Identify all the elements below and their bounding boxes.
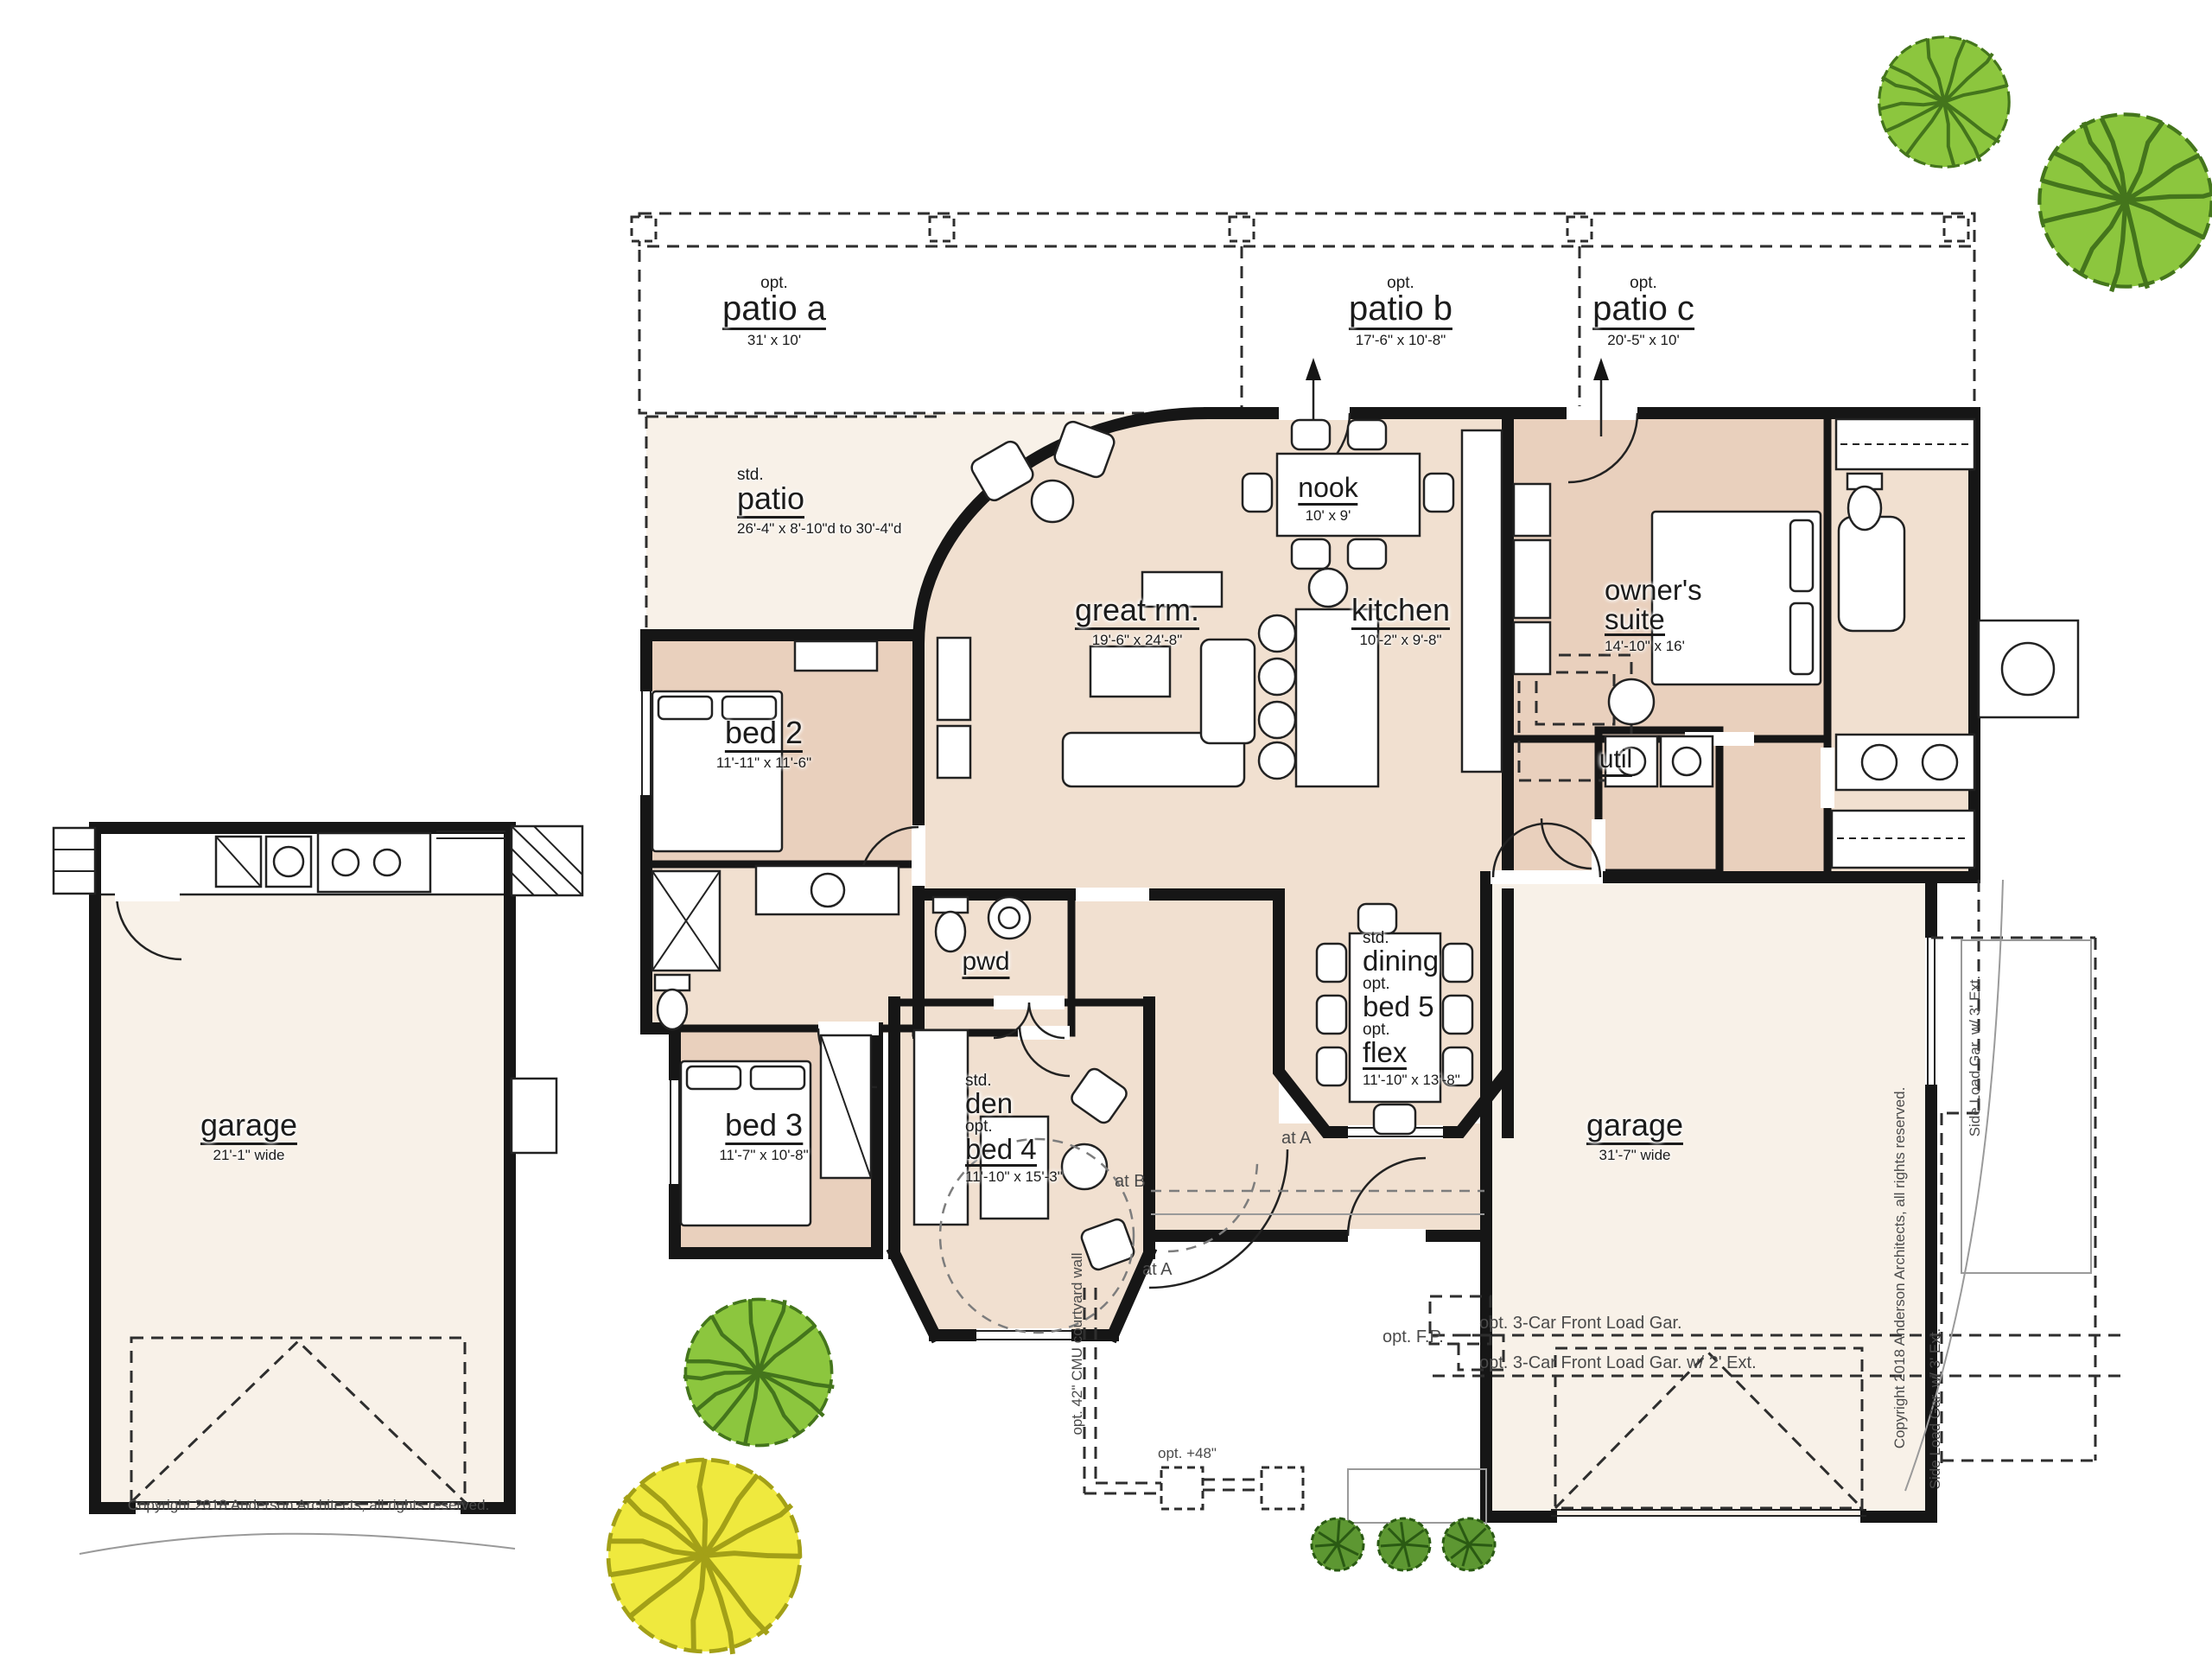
bookcase — [914, 1030, 968, 1225]
dresser — [795, 641, 877, 671]
toilet — [658, 990, 687, 1029]
label-garage-left: garage 21'-1" wide — [200, 1110, 297, 1162]
label-patio-c: opt. patio c 20'-5" x 10' — [1592, 275, 1694, 348]
front-walk — [1348, 1469, 1486, 1523]
tree-icon — [1879, 37, 2009, 167]
nightstand — [1609, 679, 1654, 724]
wall-bump — [512, 1079, 556, 1153]
patio-posts — [632, 217, 1968, 241]
desk-chair — [1062, 1144, 1107, 1189]
media-cabinet — [938, 726, 970, 778]
driveway-curve — [79, 1534, 515, 1554]
courtyard-post — [1161, 1467, 1203, 1509]
fireplace-bump — [1979, 621, 2078, 717]
patio-a-dims: 31' x 10' — [722, 333, 826, 347]
side-load-note-top: Side Load Gar. w/ 3' Ext. — [1967, 976, 1984, 1137]
copyright-left: Copyright 2018 Anderson Architects, all … — [128, 1497, 490, 1514]
shrub-icon — [1368, 1508, 1441, 1582]
tub — [1839, 517, 1904, 631]
vanity — [1836, 735, 1974, 790]
courtyard-post — [1262, 1467, 1303, 1509]
floor-plan-sheet: opt. patio a 31' x 10' opt. patio b 17'-… — [0, 0, 2212, 1655]
at-a-note-1: at A — [1281, 1129, 1311, 1149]
label-util: util — [1599, 747, 1632, 777]
media-cabinet — [938, 638, 970, 720]
kitchen-counter — [1462, 430, 1502, 772]
garage-right-floor — [1486, 877, 1931, 1517]
opt-48-note: opt. +48" — [1158, 1445, 1217, 1462]
label-great-room: great rm. 19'-6" x 24'-8" — [1075, 595, 1199, 647]
label-owners-suite: owner's suite 14'-10" x 16' — [1605, 576, 1702, 654]
opt-fp-note: opt. F.P. — [1382, 1327, 1444, 1347]
label-kitchen: kitchen 10'-2" x 9'-8" — [1351, 595, 1450, 647]
label-dining: std. dining opt. bed 5 opt. flex 11'-10"… — [1363, 930, 1460, 1087]
opt-3car-note: opt. 3-Car Front Load Gar. — [1479, 1314, 1682, 1334]
tree-icon — [2005, 80, 2212, 322]
floor-plan-drawing — [0, 0, 2212, 1655]
label-pwd: pwd — [962, 949, 1009, 979]
toilet — [1848, 487, 1881, 530]
label-garage-right: garage 31'-7" wide — [1586, 1110, 1683, 1162]
pedestal-sink — [988, 897, 1030, 939]
label-patio-b: opt. patio b 17'-6" x 10'-8" — [1349, 275, 1452, 348]
shrub-icon — [1312, 1518, 1363, 1570]
label-patio-a: opt. patio a 31' x 10' — [722, 275, 826, 348]
sofa-chaise — [1201, 640, 1255, 743]
pillow — [1790, 603, 1813, 674]
at-b-note: at B — [1115, 1172, 1146, 1192]
garage-left-floor — [95, 894, 510, 1508]
toilet — [936, 912, 965, 952]
pillow — [1790, 520, 1813, 591]
tree-icon — [662, 1276, 856, 1470]
at-a-note-2: at A — [1142, 1260, 1172, 1280]
coffee-table — [1090, 646, 1170, 697]
foyer-floor — [1149, 894, 1279, 1236]
label-std-patio: std. patio 26'-4" x 8'-10"d to 30'-4"d — [737, 467, 901, 536]
courtyard-wall-note: opt. 42" CMU courtyard wall — [1069, 1252, 1086, 1435]
label-den: std. den opt. bed 4 11'-10" x 15'-3" — [965, 1073, 1063, 1184]
patio-a-name: patio a — [722, 291, 826, 330]
patio-roof-band — [639, 213, 1974, 246]
side-table — [1032, 481, 1073, 522]
copyright-right: Copyright 2018 Anderson Architects, all … — [1891, 1087, 1909, 1449]
patio-strip-outline — [639, 213, 1974, 413]
side-load-note-bottom: Side Load Gar. w/ 3' Ext. — [1927, 1328, 1944, 1490]
label-nook: nook 10' x 9' — [1298, 474, 1357, 523]
label-bed2: bed 2 11'-11" x 11'-6" — [716, 717, 811, 770]
yellow-tree-icon — [587, 1438, 822, 1655]
label-bed3: bed 3 11'-7" x 10'-8" — [719, 1110, 808, 1162]
opt-3car-ext-note: opt. 3-Car Front Load Gar. w/ 2' Ext. — [1479, 1353, 1757, 1373]
